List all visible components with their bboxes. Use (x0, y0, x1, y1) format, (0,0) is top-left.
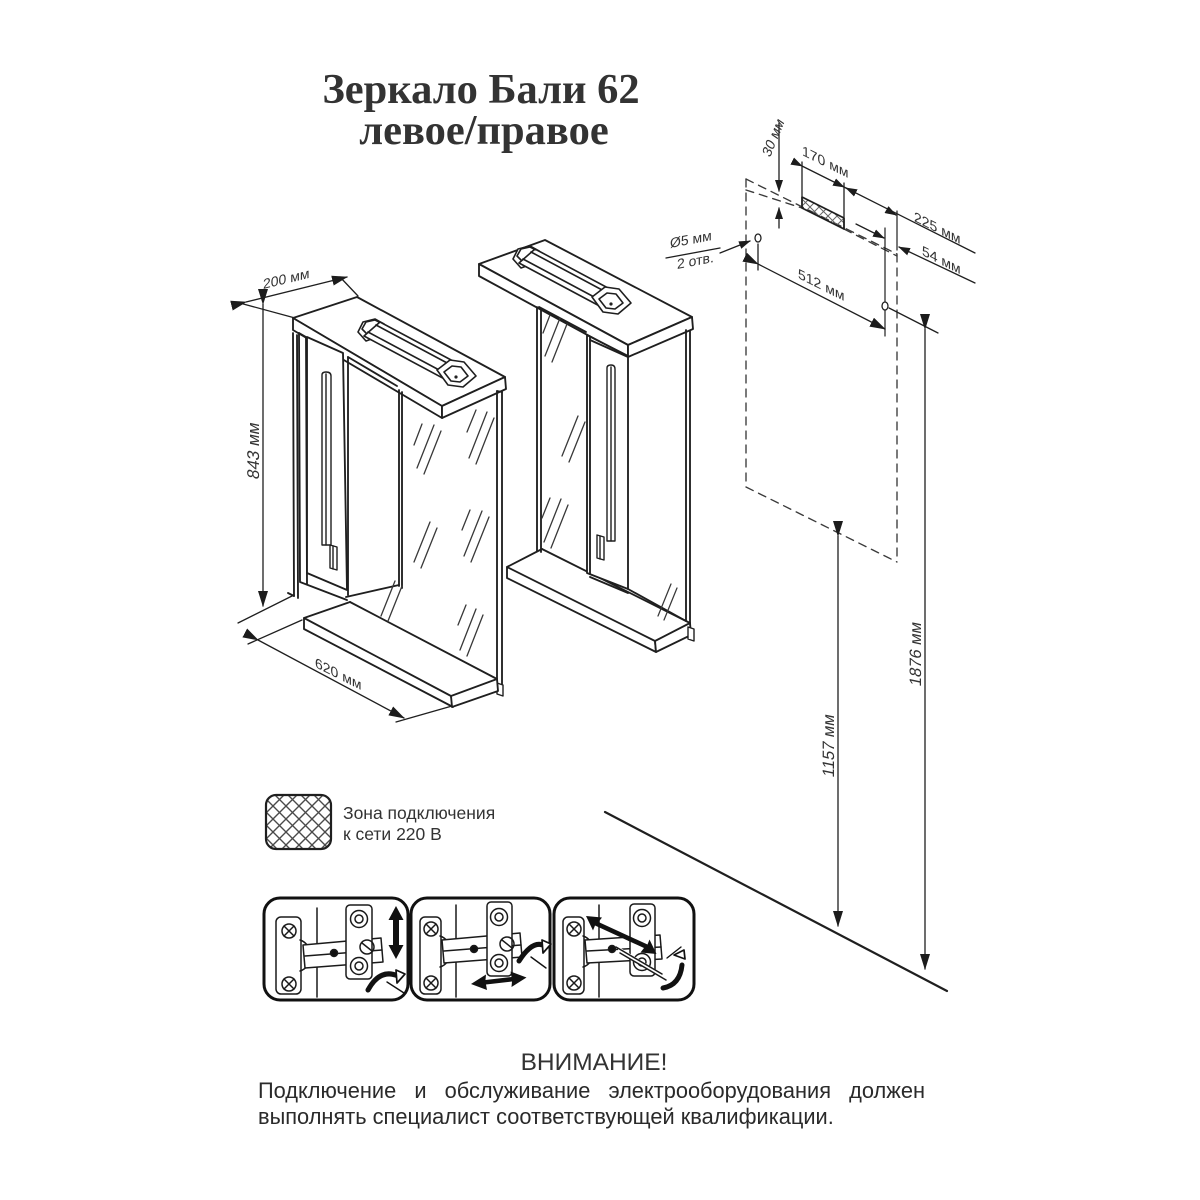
svg-text:Зона подключения: Зона подключения (343, 803, 495, 823)
svg-text:54 мм: 54 мм (922, 244, 961, 278)
svg-text:843 мм: 843 мм (243, 420, 263, 481)
svg-text:225 мм: 225 мм (914, 210, 960, 248)
svg-text:к сети 220 В: к сети 220 В (343, 824, 442, 844)
svg-text:Ø5 мм: Ø5 мм (670, 227, 712, 251)
svg-text:1157 мм: 1157 мм (819, 712, 838, 779)
svg-text:ВНИМАНИЕ!: ВНИМАНИЕ! (521, 1049, 668, 1076)
svg-text:Зеркало Бали 62: Зеркало Бали 62 (322, 66, 639, 113)
svg-text:левое/правое: левое/правое (359, 107, 608, 154)
svg-text:1876 мм: 1876 мм (906, 620, 925, 688)
svg-text:200 мм: 200 мм (263, 266, 309, 293)
svg-text:30 мм: 30 мм (759, 115, 787, 160)
svg-text:512 мм: 512 мм (798, 267, 844, 305)
svg-text:170 мм: 170 мм (802, 144, 848, 182)
